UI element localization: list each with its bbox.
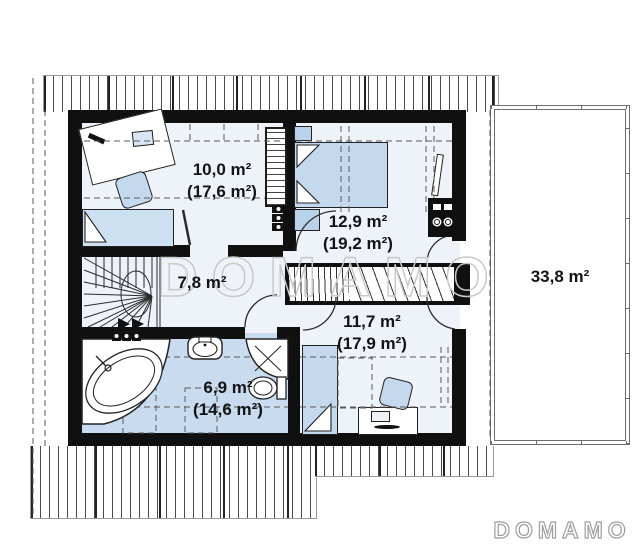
- roof-hatch-bottom-left: [30, 446, 317, 519]
- room1-area-total: (17,6 m²): [142, 181, 302, 203]
- bathroom-label: 6,9 m² (14,6 m²): [148, 377, 308, 421]
- brand-logo: DOMAMO: [492, 517, 632, 544]
- terrace-railing-ticks-top: [491, 106, 629, 109]
- keyboard-icon: [374, 425, 400, 429]
- bedroom-label: 12,9 m² (19,2 m²): [278, 211, 438, 255]
- nightstand-icon: [294, 126, 312, 141]
- terrace-railing-ticks-right: [626, 106, 629, 444]
- hall-area: 7,8 m²: [142, 272, 262, 294]
- bedroom-area: 12,9 m²: [278, 211, 438, 233]
- bathroom-area: 6,9 m²: [148, 377, 308, 399]
- hall-label: 7,8 m²: [142, 272, 262, 294]
- terrace-railing-ticks-bottom: [491, 441, 629, 444]
- roof-hatch-top: [43, 75, 499, 112]
- wall-bathroom-top-left: [74, 327, 245, 339]
- terrace-label: 33,8 m²: [500, 266, 620, 288]
- room2-area-total: (17,9 m²): [292, 333, 452, 355]
- room2-area: 11,7 m²: [292, 311, 452, 333]
- terrace-area-value: 33,8 m²: [500, 266, 620, 288]
- desk-lamp-icon: [88, 133, 106, 144]
- roof-hatch-bottom-right: [315, 446, 494, 477]
- monitor-icon: [371, 411, 390, 422]
- wall-right-upper: [452, 110, 466, 241]
- floor-plan: DOMAMO 10,0 m² (17,6 m²) 12,9 m² (19,2 m…: [0, 0, 640, 553]
- room1-area: 10,0 m²: [142, 159, 302, 181]
- wall-right-lower: [452, 329, 466, 446]
- desk-icon: [358, 407, 418, 435]
- double-bed-icon: [294, 142, 388, 208]
- bed-icon: [82, 209, 174, 247]
- bedroom-area-total: (19,2 m²): [278, 233, 438, 255]
- bathroom-area-total: (14,6 m²): [148, 399, 308, 421]
- room2-label: 11,7 m² (17,9 m²): [292, 311, 452, 355]
- room1-label: 10,0 m² (17,6 m²): [142, 159, 302, 203]
- laptop-icon: [132, 130, 154, 147]
